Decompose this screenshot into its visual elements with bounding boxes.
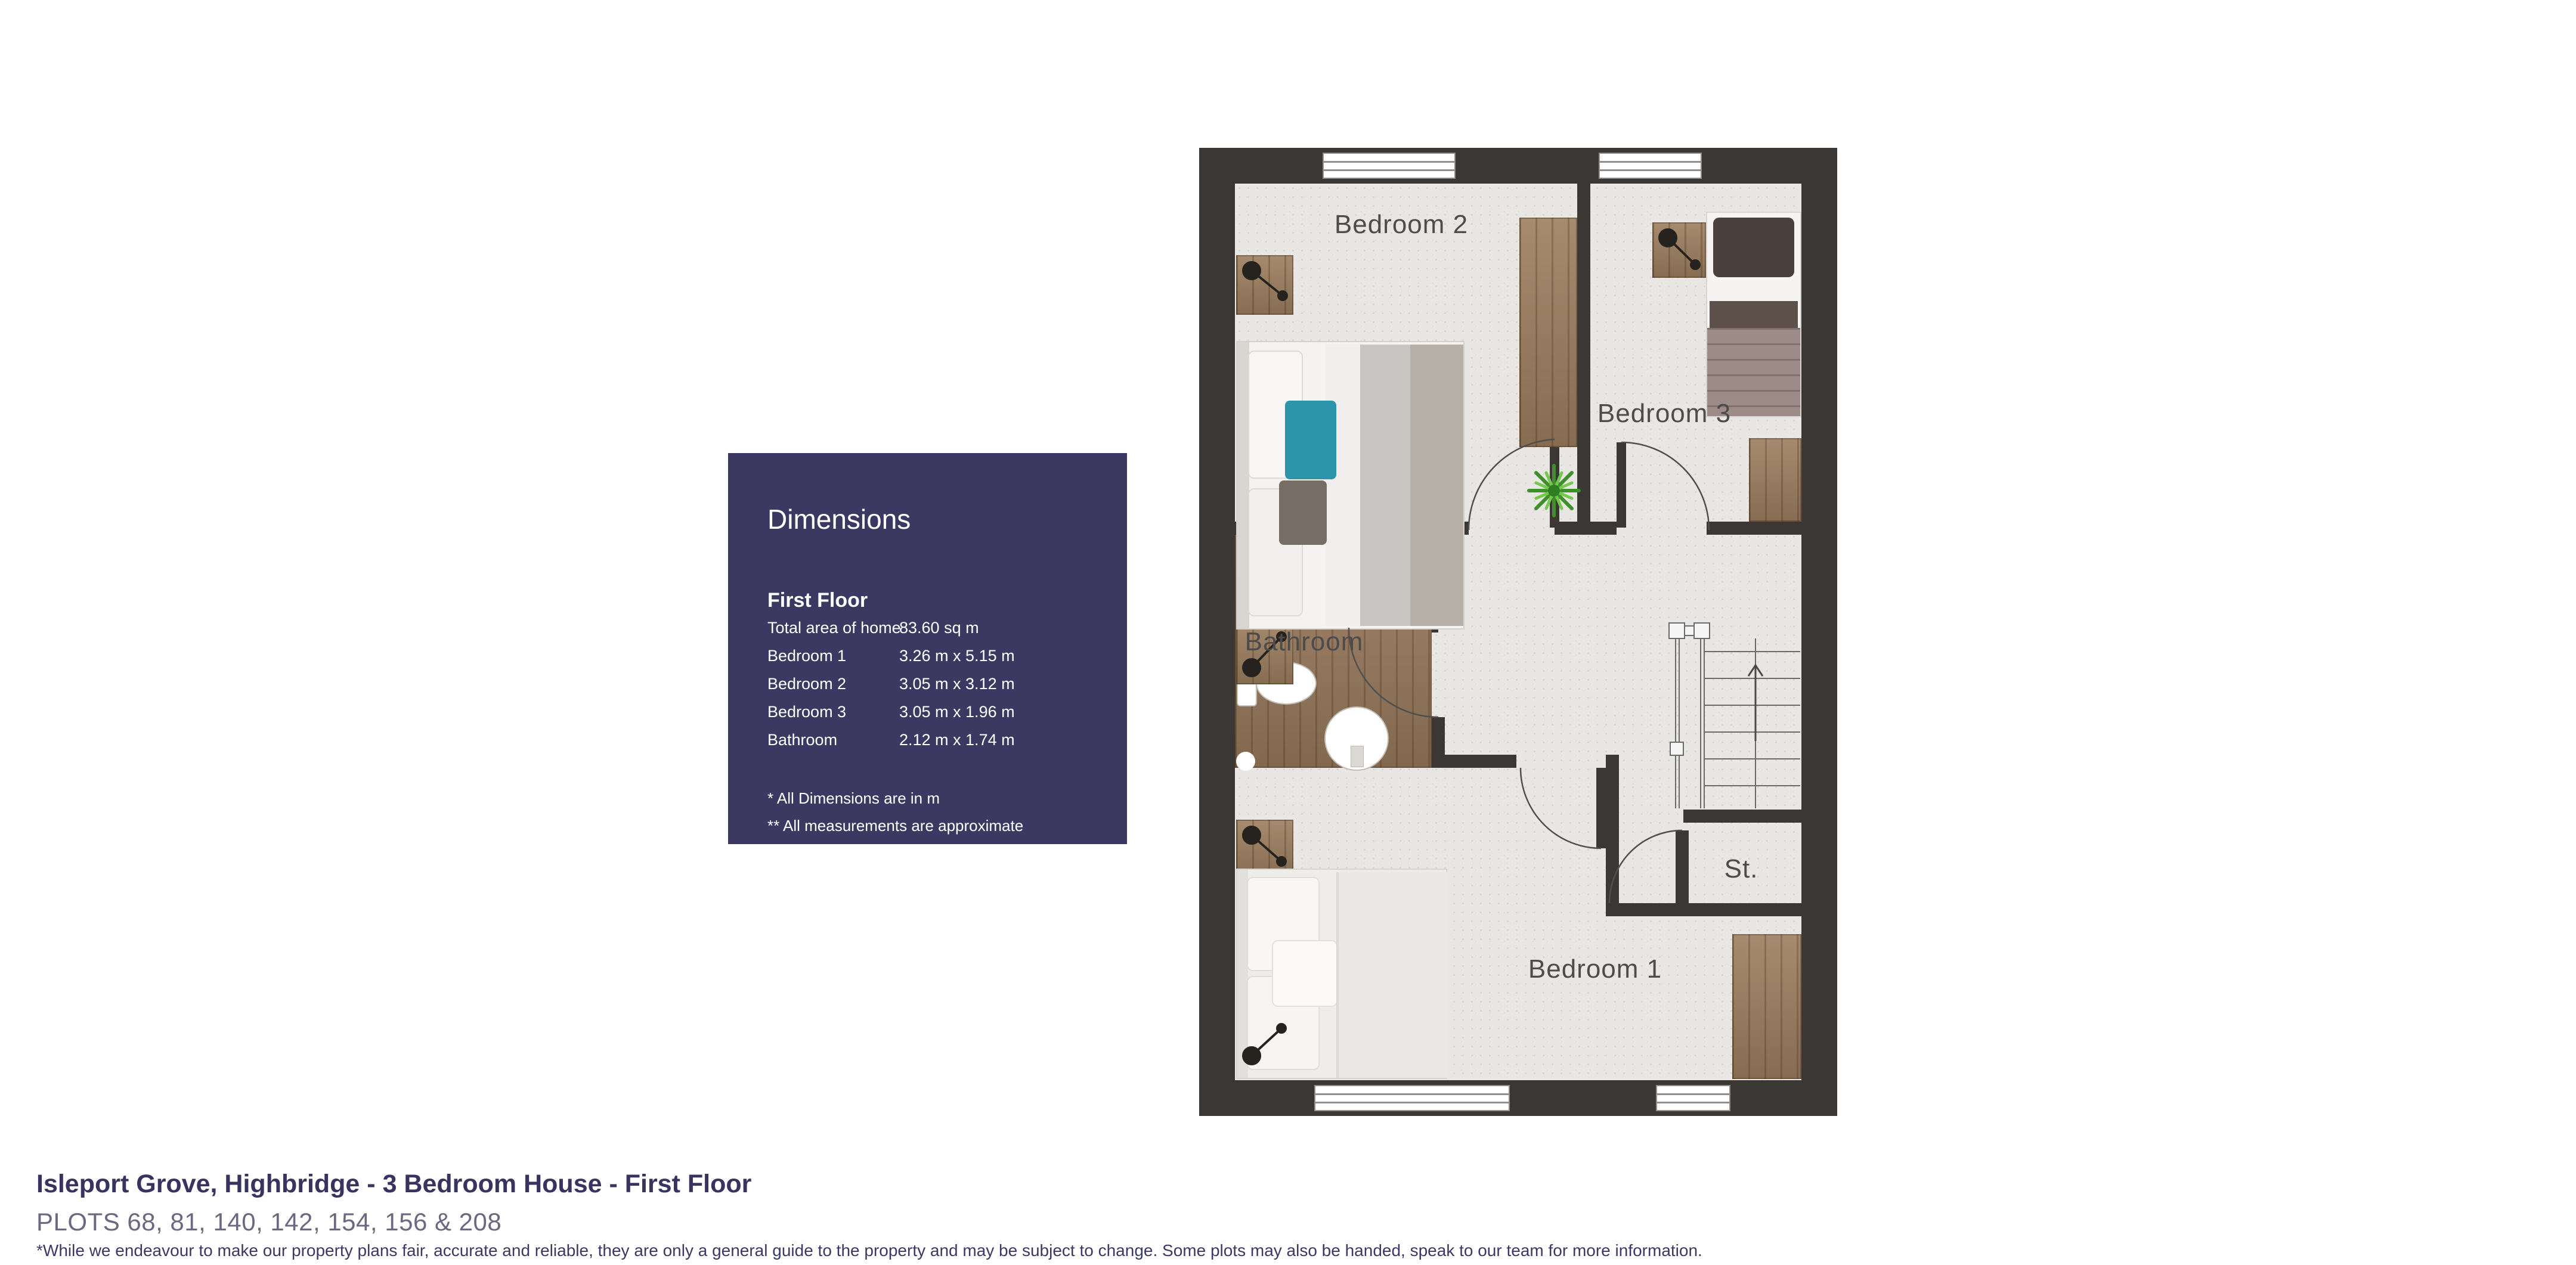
note-measurements-approximate: ** All measurements are approximate [767, 812, 1023, 839]
table-row: Bedroom 2 3.05 m x 3.12 m [767, 675, 1101, 703]
dimension-value: 2.12 m x 1.74 m [899, 731, 1015, 749]
dimension-value: 3.26 m x 5.15 m [899, 647, 1015, 665]
dimension-label: Bedroom 1 [767, 647, 846, 665]
table-row: Bedroom 1 3.26 m x 5.15 m [767, 647, 1101, 675]
table-row: Bathroom 2.12 m x 1.74 m [767, 731, 1101, 759]
dimension-label: Bathroom [767, 731, 837, 749]
stairs-up-arrow [1748, 665, 1763, 741]
door-arc-bedroom3 [1621, 442, 1709, 530]
lamp-icon [1243, 1024, 1286, 1064]
lamp-icon [1659, 230, 1699, 269]
disclaimer-text: *While we endeavour to make our property… [36, 1241, 1702, 1260]
table-row: Total area of home 83.60 sq m [767, 619, 1101, 647]
dimension-label: Total area of home [767, 619, 901, 637]
dimension-value: 83.60 sq m [899, 619, 979, 637]
lamp-icon [1243, 827, 1286, 866]
note-dimensions-unit: * All Dimensions are in m [767, 785, 1023, 812]
room-label-bathroom: Bathroom [1245, 627, 1364, 657]
room-label-bedroom1: Bedroom 1 [1528, 954, 1662, 984]
staircase [1669, 623, 1800, 808]
door-arc-storage [1609, 830, 1682, 903]
dimensions-panel: Dimensions First Floor Total area of hom… [728, 453, 1127, 844]
room-label-bedroom3: Bedroom 3 [1597, 399, 1731, 429]
page-title: Isleport Grove, Highbridge - 3 Bedroom H… [36, 1170, 751, 1199]
dimension-label: Bedroom 3 [767, 703, 846, 721]
table-row: Bedroom 3 3.05 m x 1.96 m [767, 703, 1101, 731]
door-arc-bedroom1 [1521, 768, 1601, 848]
plots-subtitle: PLOTS 68, 81, 140, 142, 154, 156 & 208 [36, 1208, 501, 1236]
dimensions-table: Total area of home 83.60 sq m Bedroom 1 … [767, 619, 1101, 759]
dimension-label: Bedroom 2 [767, 675, 846, 693]
panel-title: Dimensions [767, 503, 911, 535]
plant-icon [1529, 466, 1579, 516]
panel-floor-label: First Floor [767, 589, 868, 612]
floor-plan: Bedroom 2 Bedroom 3 Bathroom Bedroom 1 S… [1199, 148, 1837, 1116]
dimension-value: 3.05 m x 3.12 m [899, 675, 1015, 693]
dimension-value: 3.05 m x 1.96 m [899, 703, 1015, 721]
room-label-bedroom2: Bedroom 2 [1335, 210, 1468, 240]
lamp-icon [1243, 262, 1287, 300]
room-label-storage: St. [1724, 854, 1758, 884]
panel-notes: * All Dimensions are in m ** All measure… [767, 785, 1023, 839]
